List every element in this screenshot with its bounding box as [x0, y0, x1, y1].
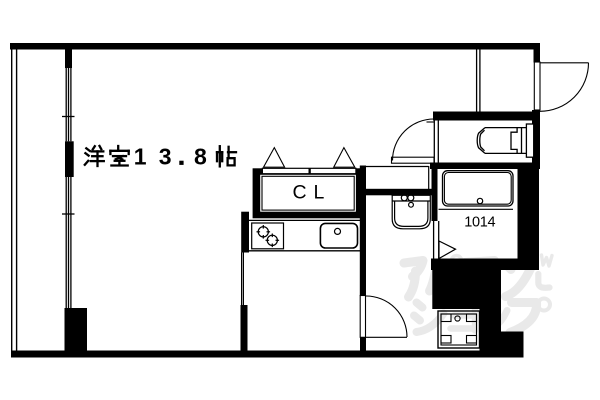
svg-text:1: 1 [134, 144, 147, 170]
svg-text:3: 3 [159, 144, 172, 170]
svg-text:C: C [293, 182, 307, 204]
svg-text:1014: 1014 [464, 215, 495, 231]
svg-text:8: 8 [194, 144, 207, 170]
svg-text:L: L [314, 182, 325, 204]
